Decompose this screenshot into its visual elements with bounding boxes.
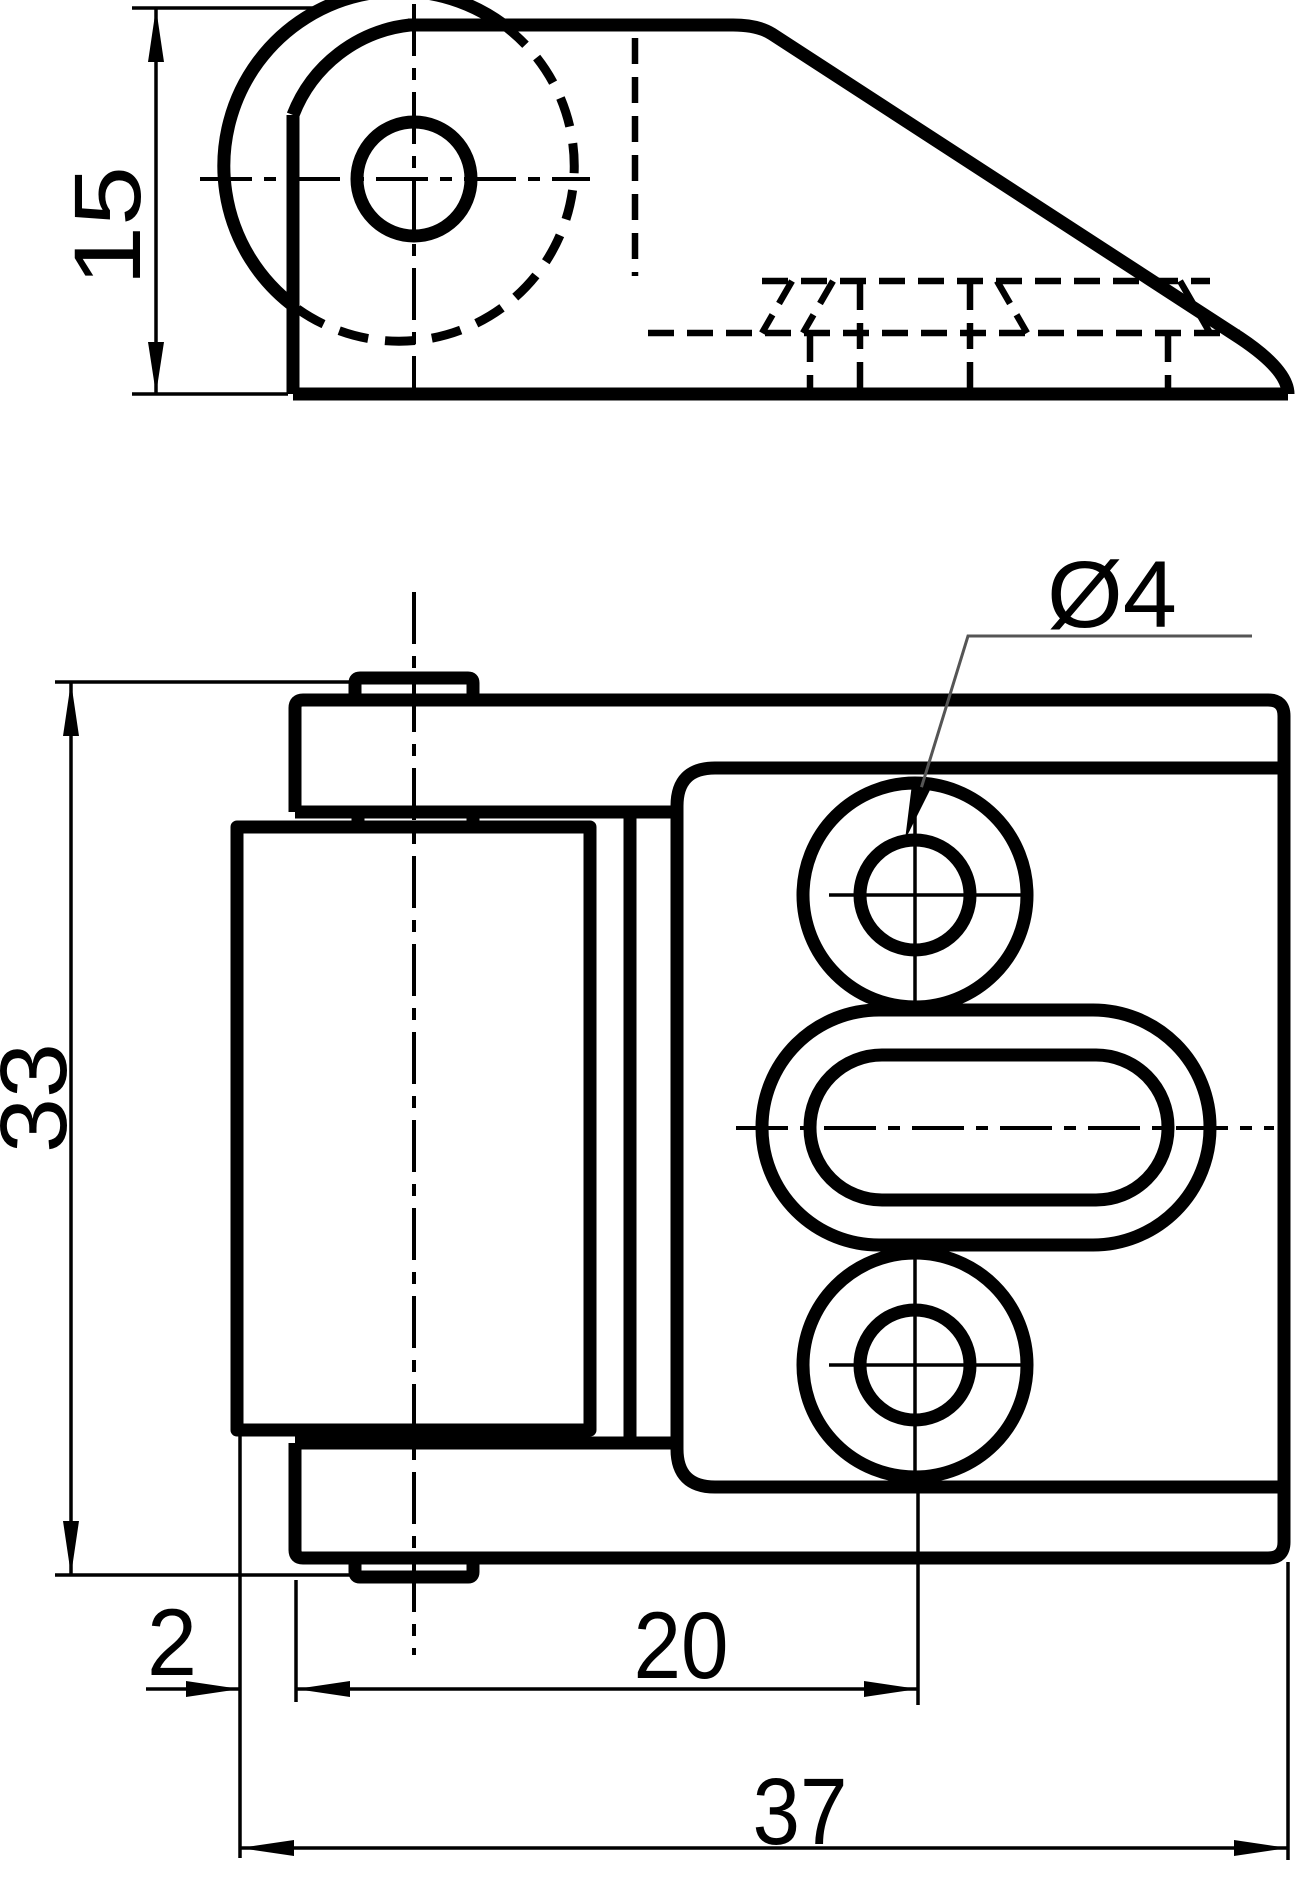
technical-drawing: 15 [0, 0, 1297, 1880]
knuckle-phantom-circle [295, 25, 574, 341]
dim-2-label: 2 [147, 1590, 197, 1696]
dim-37-label: 37 [753, 1759, 848, 1865]
dim-dia4-label: Ø4 [1047, 542, 1177, 648]
dim-33-label: 33 [0, 1043, 87, 1153]
side-view-hidden-lines [635, 38, 1240, 390]
side-view: 15 [55, 0, 1288, 394]
dim-20-label: 20 [634, 1593, 729, 1699]
bottom-screw-hole [803, 1248, 1027, 1484]
adjustment-slot [736, 1010, 1274, 1245]
drawing-page: 15 [0, 0, 1297, 1880]
dim-15-label: 15 [55, 166, 161, 286]
front-view: 33 2 20 37 Ø4 [0, 542, 1288, 1865]
dimension-37: 37 [240, 1562, 1288, 1865]
